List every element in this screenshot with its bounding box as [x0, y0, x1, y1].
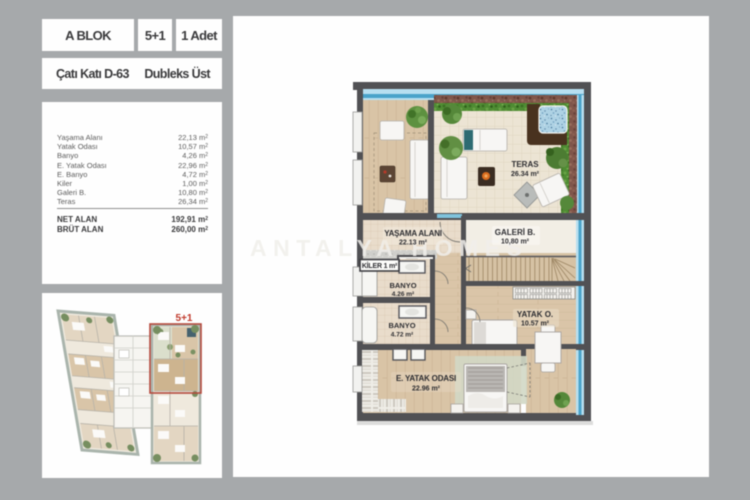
svg-text:10,80 m²: 10,80 m² [501, 239, 530, 246]
svg-text:BANYO: BANYO [388, 321, 415, 330]
svg-text:4.72 m²: 4.72 m² [391, 332, 414, 339]
svg-text:BANYO: BANYO [389, 281, 416, 290]
svg-text:5+1: 5+1 [176, 313, 193, 324]
svg-text:GALERİ B.: GALERİ B. [495, 228, 535, 237]
svg-text:26.34 m²: 26.34 m² [511, 171, 540, 178]
svg-text:YAŞAMA ALANI: YAŞAMA ALANI [384, 229, 442, 238]
svg-text:YATAK O.: YATAK O. [517, 310, 553, 319]
svg-text:TERAS: TERAS [511, 160, 539, 169]
svg-text:4.26 m²: 4.26 m² [392, 291, 415, 298]
svg-text:10.57 m²: 10.57 m² [521, 321, 550, 328]
svg-text:22.96 m²: 22.96 m² [412, 386, 441, 393]
svg-text:KİLER 1 m²: KİLER 1 m² [362, 262, 398, 270]
svg-text:22.13 m²: 22.13 m² [399, 240, 428, 247]
svg-text:E. YATAK ODASI: E. YATAK ODASI [396, 374, 456, 383]
